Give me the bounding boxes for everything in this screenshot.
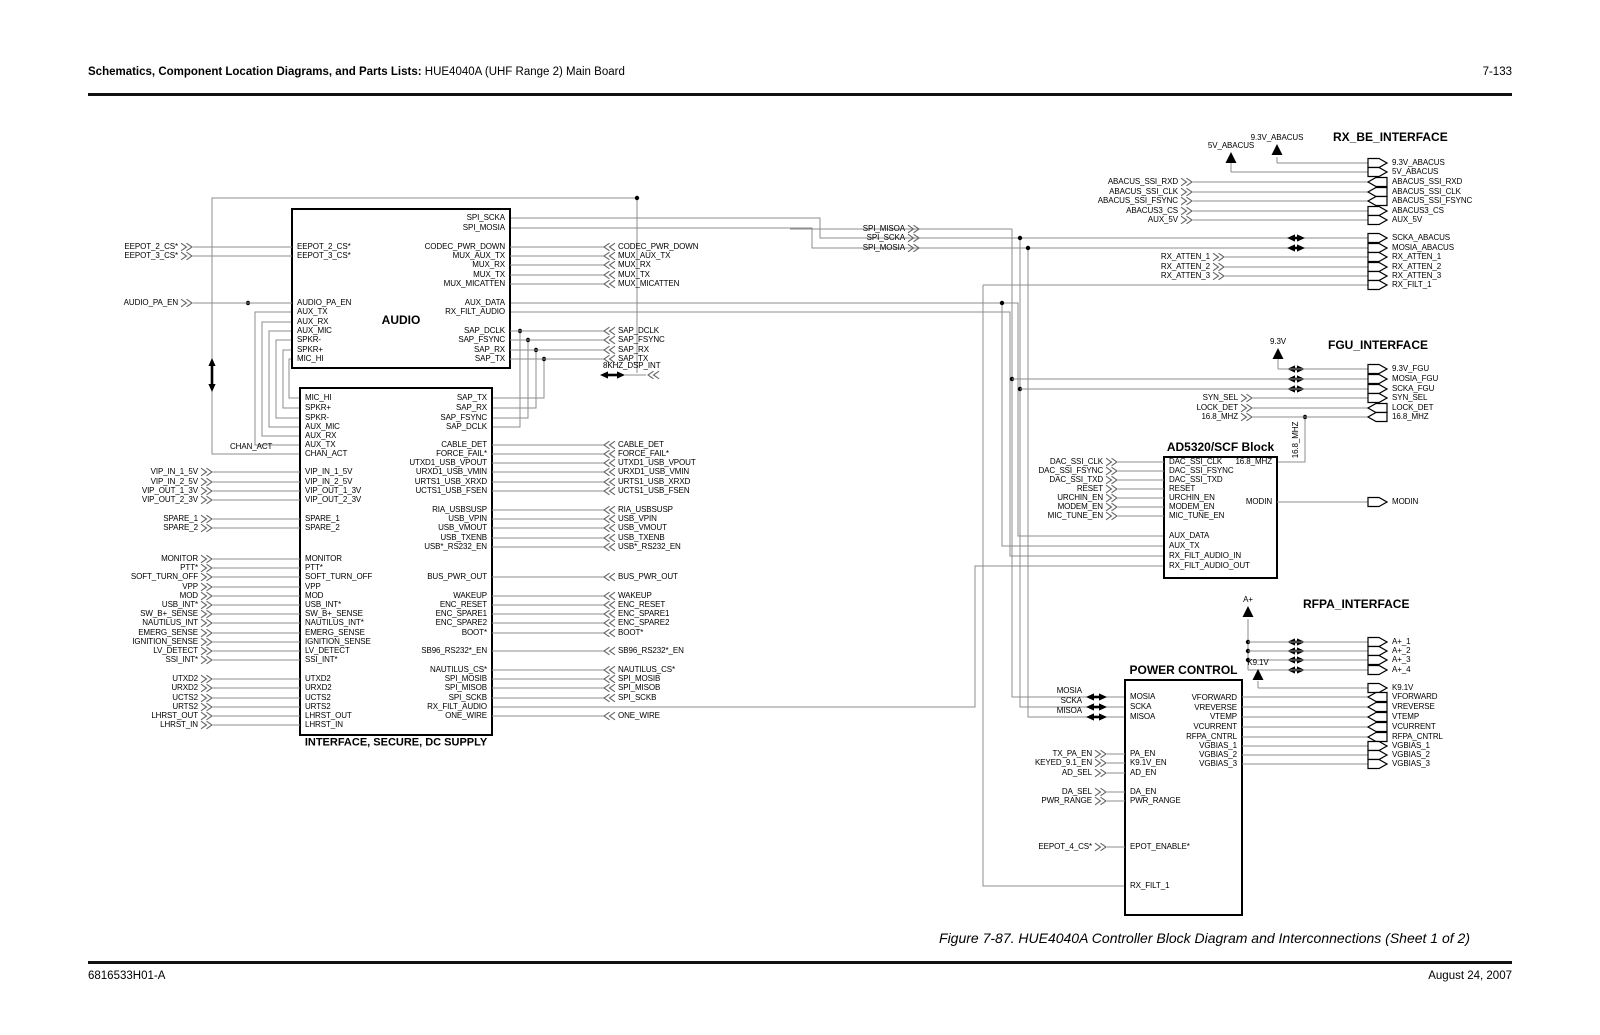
- pin-label: NAUTILUS_CS*: [430, 666, 487, 674]
- pin-label: AUX_MIC: [305, 423, 340, 431]
- pin-label: SOFT_TURN_OFF: [305, 573, 372, 581]
- signal-source-label: USB_INT*: [162, 601, 198, 609]
- pin-label: UTXD2: [305, 675, 331, 683]
- chevron-icon: [604, 712, 615, 720]
- connector-label: 9.3V_ABACUS: [1392, 159, 1445, 167]
- power-rail-label: 9.3V: [1270, 338, 1286, 346]
- pin-label: IGNITION_SENSE: [305, 638, 371, 646]
- chevron-icon: [1095, 797, 1106, 805]
- pin-label: RX_FILT_AUDIO_OUT: [1169, 562, 1250, 570]
- connector-arrow-icon: [1368, 234, 1387, 243]
- chevron-icon: [1241, 404, 1252, 412]
- connector-label: MOSIA_ABACUS: [1392, 244, 1454, 252]
- connector-label: MODIN: [1392, 498, 1418, 506]
- chevron-icon: [1106, 512, 1117, 520]
- signal-source-label: PWR_RANGE: [1041, 797, 1092, 805]
- chevron-icon: [201, 647, 212, 655]
- pin-label: RX_FILT_AUDIO_IN: [1169, 552, 1241, 560]
- chevron-icon: [201, 583, 212, 591]
- connector-label: SCKA_FGU: [1392, 385, 1434, 393]
- power-rail-icon: [1243, 606, 1254, 617]
- pin-label: MUX_MICATTEN: [444, 280, 505, 288]
- pin-label: LV_DETECT: [305, 647, 350, 655]
- connector-arrow-icon: [1368, 647, 1387, 656]
- chevron-icon: [604, 675, 615, 683]
- pin-label: AUX_RX: [305, 432, 336, 440]
- signal-dest-label: FORCE_FAIL*: [618, 450, 669, 458]
- ad5320-scf-block-title: AD5320/SCF Block: [1167, 441, 1274, 453]
- connector-arrow-icon: [1368, 666, 1387, 675]
- pin-label: VIP_OUT_2_3V: [305, 496, 361, 504]
- chevron-icon: [1106, 476, 1117, 484]
- signal-dest-label: RIA_USBSUSP: [618, 506, 673, 514]
- connector-arrow-icon: [1368, 207, 1387, 216]
- chevron-icon: [1181, 197, 1192, 205]
- signal-source-label: UTXD2: [172, 675, 198, 683]
- wire-label: 8KHZ_DSP_INT: [603, 362, 660, 370]
- pin-label: MONITOR: [305, 555, 342, 563]
- connector-arrow-icon: [1368, 713, 1387, 722]
- pin-label: PA_EN: [1130, 750, 1155, 758]
- connector-arrow-icon: [1368, 263, 1387, 272]
- schematic-page: Schematics, Component Location Diagrams,…: [0, 0, 1600, 1035]
- pin-label: VIP_IN_2_5V: [305, 478, 352, 486]
- connector-arrow-icon: [1368, 751, 1387, 760]
- signal-source-label: EEPOT_2_CS*: [124, 243, 178, 251]
- chevron-icon: [201, 468, 212, 476]
- pin-label: AUX_DATA: [1169, 532, 1209, 540]
- pin-label: UTXD1_USB_VPOUT: [409, 459, 487, 467]
- pin-label: RX_FILT_AUDIO: [427, 703, 487, 711]
- bus-arrow-head: [1297, 244, 1305, 251]
- connector-label: VREVERSE: [1392, 703, 1435, 711]
- pin-label: FORCE_FAIL*: [436, 450, 487, 458]
- chevron-icon: [604, 534, 615, 542]
- pin-label: NAUTILUS_INT*: [305, 619, 364, 627]
- pin-label: BUS_PWR_OUT: [427, 573, 487, 581]
- bus-arrow-head: [1086, 713, 1094, 720]
- pin-label: SAP_FSYNC: [440, 414, 487, 422]
- pin-label: SAP_TX: [457, 394, 487, 402]
- signal-source-label: SPI_MOSIA: [863, 244, 905, 252]
- pin-label: USB_VPIN: [448, 515, 487, 523]
- connector-arrow-icon: [1368, 281, 1387, 290]
- chevron-icon: [604, 271, 615, 279]
- chevron-icon: [201, 684, 212, 692]
- connector-arrow-icon: [1368, 760, 1387, 769]
- connector-label: K9.1V: [1392, 684, 1413, 692]
- chevron-icon: [1213, 272, 1224, 280]
- pin-label: ONE_WIRE: [445, 712, 487, 720]
- pin-label: SPI_MISOB: [445, 684, 487, 692]
- chevron-icon: [604, 346, 615, 354]
- connector-arrow-icon: [1368, 216, 1387, 225]
- pin-label: URTS2: [305, 703, 331, 711]
- signal-source-label: EMERG_SENSE: [138, 629, 198, 637]
- pin-label: UCTS2: [305, 694, 331, 702]
- pin-label: SAP_DCLK: [464, 327, 505, 335]
- pin-label: RX_FILT_1: [1130, 882, 1169, 890]
- chevron-icon: [201, 564, 212, 572]
- connector-label: SCKA_ABACUS: [1392, 234, 1450, 242]
- pin-label: MISOA: [1130, 713, 1155, 721]
- signal-source-label: UCTS2: [172, 694, 198, 702]
- chevron-icon: [604, 647, 615, 655]
- signal-source-label: ABACUS_SSI_CLK: [1109, 188, 1178, 196]
- pin-label: SPKR-: [297, 336, 321, 344]
- chevron-icon: [201, 675, 212, 683]
- power-rail-icon: [1272, 144, 1283, 155]
- pin-label: USB_INT*: [305, 601, 341, 609]
- signal-source-label: PTT*: [180, 564, 198, 572]
- signal-source-label: EEPOT_3_CS*: [124, 252, 178, 260]
- connector-arrow-icon: [1368, 375, 1387, 384]
- pin-label: AUX_RX: [297, 318, 328, 326]
- chevron-icon: [1095, 843, 1106, 851]
- signal-dest-label: NAUTILUS_CS*: [618, 666, 675, 674]
- signal-dest-label: BOOT*: [618, 629, 643, 637]
- connector-arrow-icon: [1368, 365, 1387, 374]
- power-rail-icon: [1273, 348, 1284, 359]
- connector-arrow-icon: [1368, 253, 1387, 262]
- pin-label: SW_B+_SENSE: [305, 610, 363, 618]
- signal-source-label: URTS2: [172, 703, 198, 711]
- pin-label: EPOT_ENABLE*: [1130, 843, 1190, 851]
- pin-label: SPKR+: [297, 346, 323, 354]
- pin-label: SPI_SCKB: [449, 694, 487, 702]
- signal-dest-label: USB_TXENB: [618, 534, 665, 542]
- chevron-icon: [1241, 394, 1252, 402]
- power-rail-icon: [1226, 152, 1237, 163]
- pin-label: SPKR-: [305, 414, 329, 422]
- chevron-icon: [604, 524, 615, 532]
- wire-label: SCKA: [1061, 697, 1082, 705]
- chevron-icon: [604, 459, 615, 467]
- junction-dot: [1000, 301, 1004, 305]
- chevron-icon: [604, 243, 615, 251]
- chevron-icon: [1106, 467, 1117, 475]
- pin-label: SCKA: [1130, 703, 1151, 711]
- signal-source-label: IGNITION_SENSE: [132, 638, 198, 646]
- signal-source-label: RX_ATTEN_1: [1161, 253, 1210, 261]
- pin-label: SPI_SCKA: [467, 214, 505, 222]
- connector-label: A+_4: [1392, 666, 1411, 674]
- signal-dest-label: USB*_RS232_EN: [618, 543, 681, 551]
- signal-dest-label: MUX_AUX_TX: [618, 252, 670, 260]
- pin-label: UCTS1_USB_FSEN: [415, 487, 487, 495]
- chevron-icon: [201, 496, 212, 504]
- signal-source-label: SPI_SCKA: [867, 234, 905, 242]
- chevron-icon: [604, 336, 615, 344]
- signal-dest-label: BUS_PWR_OUT: [618, 573, 678, 581]
- chevron-icon: [181, 299, 192, 307]
- pin-label: WAKEUP: [453, 592, 487, 600]
- chevron-icon: [604, 327, 615, 335]
- connector-label: VGBIAS_3: [1392, 760, 1430, 768]
- pin-label: VREVERSE: [1194, 704, 1237, 712]
- chevron-icon: [604, 629, 615, 637]
- chevron-icon: [604, 694, 615, 702]
- signal-source-label: AD_SEL: [1062, 769, 1092, 777]
- signal-dest-label: MUX_TX: [618, 271, 650, 279]
- connector-arrow-icon: [1368, 385, 1387, 394]
- pin-label: SPARE_2: [305, 524, 340, 532]
- chevron-icon: [604, 610, 615, 618]
- connector-label: 9.3V_FGU: [1392, 365, 1429, 373]
- footer-date: August 24, 2007: [1428, 970, 1512, 982]
- chevron-icon: [1181, 178, 1192, 186]
- chevron-icon: [604, 478, 615, 486]
- bus-arrow-head: [1086, 693, 1094, 700]
- signal-source-label: SSI_INT*: [165, 656, 198, 664]
- chevron-icon: [181, 252, 192, 260]
- signal-source-label: SPARE_1: [163, 515, 198, 523]
- chevron-icon: [604, 506, 615, 514]
- chevron-icon: [1106, 494, 1117, 502]
- signal-dest-label: USB_VMOUT: [618, 524, 667, 532]
- bus-arrow-head: [208, 358, 215, 366]
- chevron-icon: [604, 487, 615, 495]
- signal-source-label: LHRST_IN: [160, 721, 198, 729]
- signal-source-label: SPI_MISOA: [863, 225, 905, 233]
- connector-arrow-icon: [1368, 272, 1387, 281]
- connector-label: RX_ATTEN_2: [1392, 263, 1441, 271]
- chevron-icon: [201, 638, 212, 646]
- chevron-icon: [1095, 769, 1106, 777]
- bus-arrow-head: [1287, 234, 1295, 241]
- chevron-icon: [604, 573, 615, 581]
- pin-label: SSI_INT*: [305, 656, 338, 664]
- signal-dest-label: URXD1_USB_VMIN: [618, 468, 689, 476]
- pin-label: ENC_SPARE1: [436, 610, 487, 618]
- power-rail-label: 5V_ABACUS: [1208, 142, 1254, 150]
- chevron-icon: [201, 656, 212, 664]
- pin-label: K9.1V_EN: [1130, 759, 1167, 767]
- signal-source-label: KEYED_9.1_EN: [1035, 759, 1092, 767]
- footer-part-number: 6816533H01-A: [88, 970, 165, 982]
- connector-label: ABACUS_SSI_RXD: [1392, 178, 1462, 186]
- connector-label: ABACUS_SSI_FSYNC: [1392, 197, 1472, 205]
- signal-source-label: MODEM_EN: [1058, 503, 1103, 511]
- chevron-icon: [201, 629, 212, 637]
- chevron-icon: [604, 515, 615, 523]
- pin-label: ENC_RESET: [440, 601, 487, 609]
- chevron-icon: [201, 703, 212, 711]
- connector-label: VFORWARD: [1392, 693, 1437, 701]
- signal-dest-label: SB96_RS232*_EN: [618, 647, 684, 655]
- connector-label: RFPA_CNTRL: [1392, 733, 1443, 741]
- pin-label: RIA_USBSUSP: [432, 506, 487, 514]
- pin-label: RESET: [1169, 485, 1195, 493]
- bus-arrow-head: [208, 384, 215, 392]
- chevron-icon: [201, 610, 212, 618]
- chevron-icon: [201, 619, 212, 627]
- pin-label: DAC_SSI_CLK: [1169, 458, 1222, 466]
- pin-label: AUX_TX: [1169, 542, 1200, 550]
- signal-source-label: ABACUS3_CS: [1126, 207, 1178, 215]
- figure-caption: Figure 7-87. HUE4040A Controller Block D…: [939, 930, 1470, 946]
- connector-arrow-icon: [1368, 703, 1387, 712]
- bus-arrow-head: [1099, 713, 1107, 720]
- chevron-icon: [201, 592, 212, 600]
- signal-source-label: AUX_5V: [1148, 216, 1178, 224]
- power-rail-label: K9.1V: [1247, 659, 1268, 667]
- pin-label: URXD1_USB_VMIN: [416, 468, 487, 476]
- signal-dest-label: SAP_DCLK: [618, 327, 659, 335]
- pin-label: CHAN_ACT: [305, 450, 347, 458]
- signal-source-label: LHRST_OUT: [151, 712, 198, 720]
- connector-label: VTEMP: [1392, 713, 1419, 721]
- connector-arrow-icon: [1368, 404, 1387, 413]
- pin-label: RFPA_CNTRL: [1186, 733, 1237, 741]
- signal-source-label: LOCK_DET: [1197, 404, 1238, 412]
- signal-source-label: URCHIN_EN: [1057, 494, 1103, 502]
- signal-source-label: DAC_SSI_CLK: [1050, 458, 1103, 466]
- pin-label: VGBIAS_1: [1199, 742, 1237, 750]
- connector-label: ABACUS_SSI_CLK: [1392, 188, 1461, 196]
- connector-label: 5V_ABACUS: [1392, 168, 1438, 176]
- pin-label: AUX_DATA: [465, 299, 505, 307]
- pin-label: VIP_IN_1_5V: [305, 468, 352, 476]
- connector-arrow-icon: [1368, 394, 1387, 403]
- pin-label: CODEC_PWR_DOWN: [425, 243, 505, 251]
- junction-dot: [635, 196, 639, 200]
- power-rail-icon: [1253, 669, 1264, 680]
- chevron-icon: [1106, 458, 1117, 466]
- connector-label: RX_ATTEN_3: [1392, 272, 1441, 280]
- signal-source-label: MOD: [180, 592, 198, 600]
- footer-rule: [88, 961, 1512, 964]
- pin-label: RX_FILT_AUDIO: [445, 308, 505, 316]
- pin-label: VTEMP: [1210, 713, 1237, 721]
- connector-label: A+_3: [1392, 656, 1411, 664]
- signal-dest-label: ENC_SPARE2: [618, 619, 669, 627]
- pin-label: MOD: [305, 592, 323, 600]
- pin-label: MIC_HI: [297, 355, 324, 363]
- pin-label: VCURRENT: [1193, 723, 1237, 731]
- signal-source-label: 16.8_MHZ: [1201, 413, 1238, 421]
- pin-label: LHRST_IN: [305, 721, 343, 729]
- wire: [269, 331, 300, 427]
- pin-label: EEPOT_3_CS*: [297, 252, 351, 260]
- pin-label: USB_TXENB: [440, 534, 487, 542]
- pin-label: 16.8_MHZ: [1235, 458, 1272, 466]
- section-title: RX_BE_INTERFACE: [1333, 131, 1448, 143]
- chevron-icon: [201, 694, 212, 702]
- pin-label: DAC_SSI_TXD: [1169, 476, 1223, 484]
- chevron-icon: [604, 592, 615, 600]
- bus-arrow-head: [600, 371, 608, 378]
- wire-label: MISOA: [1057, 707, 1082, 715]
- connector-arrow-icon: [1368, 638, 1387, 647]
- signal-source-label: DAC_SSI_TXD: [1049, 476, 1103, 484]
- signal-source-label: SPARE_2: [163, 524, 198, 532]
- pin-label: CABLE_DET: [441, 441, 487, 449]
- wire-label: CHAN_ACT: [230, 443, 272, 451]
- pin-label: MIC_TUNE_EN: [1169, 512, 1224, 520]
- pin-label: AUX_TX: [305, 441, 336, 449]
- signal-source-label: RX_ATTEN_2: [1161, 263, 1210, 271]
- signal-dest-label: MUX_MICATTEN: [618, 280, 679, 288]
- signal-dest-label: ENC_RESET: [618, 601, 665, 609]
- bus-arrow-head: [1287, 244, 1295, 251]
- pin-label: SPI_MOSIB: [445, 675, 487, 683]
- junction-dot: [1018, 236, 1022, 240]
- signal-dest-label: MUX_RX: [618, 261, 651, 269]
- chevron-icon: [181, 243, 192, 251]
- connector-arrow-icon: [1368, 159, 1387, 168]
- signal-source-label: VIP_OUT_1_3V: [142, 487, 198, 495]
- pin-label: DA_EN: [1130, 788, 1156, 796]
- pin-label: SPARE_1: [305, 515, 340, 523]
- pin-label: VFORWARD: [1192, 694, 1237, 702]
- signal-dest-label: SPI_MOSIB: [618, 675, 660, 683]
- chevron-icon: [1181, 216, 1192, 224]
- signal-dest-label: ENC_SPARE1: [618, 610, 669, 618]
- pin-label: MODEM_EN: [1169, 503, 1214, 511]
- pin-label: URTS1_USB_XRXD: [415, 478, 487, 486]
- pin-label: EEPOT_2_CS*: [297, 243, 351, 251]
- connector-label: RX_FILT_1: [1392, 281, 1431, 289]
- pin-label: USB_VMOUT: [438, 524, 487, 532]
- signal-source-label: SW_B+_SENSE: [140, 610, 198, 618]
- wire-label: MOSIA: [1057, 687, 1082, 695]
- connector-label: AUX_5V: [1392, 216, 1422, 224]
- pin-label: AUDIO_PA_EN: [297, 299, 351, 307]
- connector-arrow-icon: [1368, 178, 1387, 187]
- connector-arrow-icon: [1368, 244, 1387, 253]
- connector-label: VGBIAS_2: [1392, 751, 1430, 759]
- pin-label: SAP_TX: [475, 355, 505, 363]
- wire-label: 16.8_MHZ: [1292, 422, 1300, 459]
- connector-arrow-icon: [1368, 693, 1387, 702]
- chevron-icon: [604, 450, 615, 458]
- section-title: RFPA_INTERFACE: [1303, 598, 1409, 610]
- pin-label: AUX_MIC: [297, 327, 332, 335]
- pin-label: VGBIAS_2: [1199, 751, 1237, 759]
- signal-source-label: RESET: [1077, 485, 1103, 493]
- pin-label: VIP_OUT_1_3V: [305, 487, 361, 495]
- pin-label: SPI_MOSIA: [463, 224, 505, 232]
- chevron-icon: [1213, 263, 1224, 271]
- signal-source-label: ABACUS_SSI_FSYNC: [1098, 197, 1178, 205]
- bus-arrow-head: [1297, 234, 1305, 241]
- pin-label: SAP_RX: [456, 404, 487, 412]
- connector-arrow-icon: [1368, 498, 1387, 507]
- chevron-icon: [201, 524, 212, 532]
- pin-label: AUX_TX: [297, 308, 328, 316]
- chevron-icon: [604, 684, 615, 692]
- pin-label: SAP_DCLK: [446, 423, 487, 431]
- chevron-icon: [1095, 788, 1106, 796]
- chevron-icon: [604, 619, 615, 627]
- chevron-icon: [201, 515, 212, 523]
- signal-dest-label: SAP_FSYNC: [618, 336, 665, 344]
- chevron-icon: [604, 252, 615, 260]
- pin-label: MUX_RX: [472, 261, 505, 269]
- signal-source-label: SOFT_TURN_OFF: [131, 573, 198, 581]
- signal-source-label: VIP_OUT_2_3V: [142, 496, 198, 504]
- chevron-icon: [201, 573, 212, 581]
- connector-arrow-icon: [1368, 197, 1387, 206]
- chevron-icon: [604, 601, 615, 609]
- signal-dest-label: CABLE_DET: [618, 441, 664, 449]
- signal-source-label: MIC_TUNE_EN: [1048, 512, 1103, 520]
- signal-dest-label: SAP_RX: [618, 346, 649, 354]
- pin-label: ENC_SPARE2: [436, 619, 487, 627]
- connector-label: SYN_SEL: [1392, 394, 1427, 402]
- pin-label: MIC_HI: [305, 394, 332, 402]
